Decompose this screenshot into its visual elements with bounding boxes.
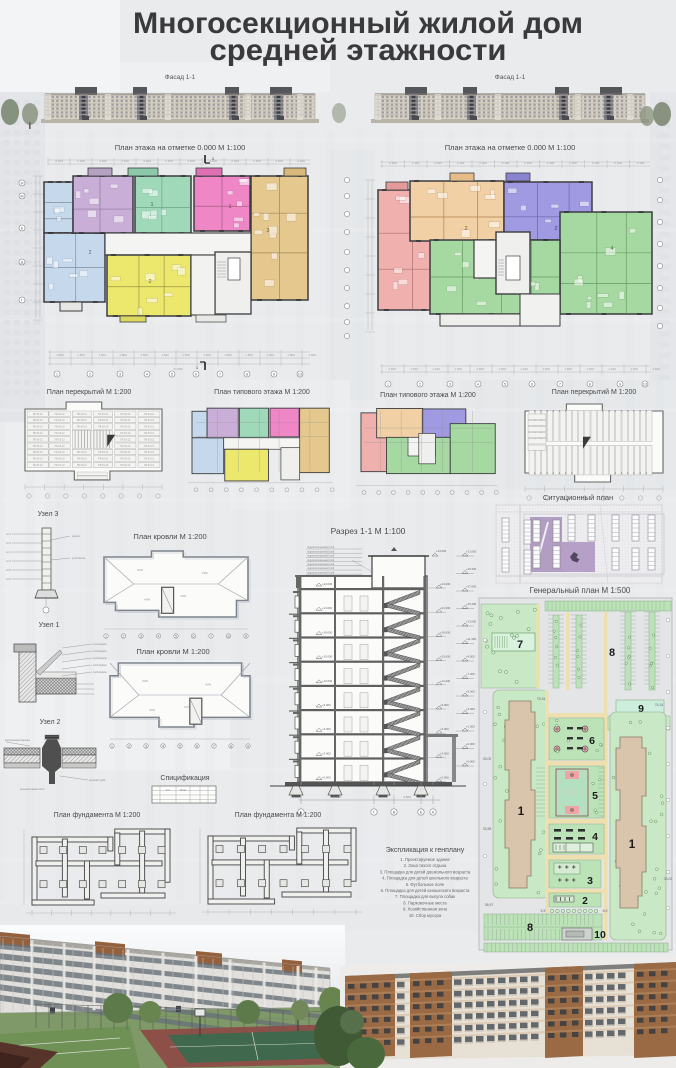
svg-text:ПК 63-12: ПК 63-12	[120, 458, 131, 461]
svg-text:1 400: 1 400	[410, 367, 418, 371]
svg-text:сл.1: сл.1	[6, 532, 12, 536]
svg-text:2 100: 2 100	[231, 159, 239, 163]
svg-text:+24.000: +24.000	[440, 582, 451, 586]
svg-text:i=2%: i=2%	[142, 679, 149, 683]
svg-text:Е: Е	[21, 226, 24, 231]
svg-text:2 100: 2 100	[569, 161, 577, 165]
svg-text:гидроизоляционный слой: гидроизоляционный слой	[307, 546, 335, 549]
svg-text:обозн.: обозн.	[179, 789, 186, 792]
svg-text:гидроизоляционный слой: гидроизоляционный слой	[307, 555, 335, 558]
svg-text:ПК 63-12: ПК 63-12	[77, 426, 88, 429]
svg-text:1 400: 1 400	[586, 367, 594, 371]
svg-text:1: 1	[150, 202, 153, 208]
svg-text:i=2%: i=2%	[202, 571, 209, 575]
svg-text:10. Сбор мусора: 10. Сбор мусора	[409, 913, 442, 918]
svg-text:Экспликация к генплану: Экспликация к генплану	[386, 847, 465, 854]
svg-text:ПК 63-12: ПК 63-12	[33, 438, 44, 441]
svg-text:ПК 63-12: ПК 63-12	[33, 445, 44, 448]
svg-text:ПК 63-12: ПК 63-12	[77, 451, 88, 454]
svg-text:10: 10	[298, 372, 303, 377]
svg-text:ПК 63-12: ПК 63-12	[55, 438, 66, 441]
svg-text:1 500: 1 500	[182, 353, 190, 357]
svg-text:+0.000: +0.000	[322, 776, 331, 780]
svg-text:+12.000: +12.000	[322, 679, 333, 683]
svg-text:8: 8	[527, 922, 533, 934]
svg-text:76,34: 76,34	[537, 697, 546, 701]
svg-text:1 400: 1 400	[630, 367, 638, 371]
svg-text:сл.5: сл.5	[6, 568, 12, 572]
svg-text:+6.000: +6.000	[322, 727, 331, 731]
svg-text:1 400: 1 400	[476, 367, 484, 371]
svg-text:поз.: поз.	[166, 789, 171, 792]
svg-text:1 400: 1 400	[454, 367, 462, 371]
svg-text:гидроизоляционный слой: гидроизоляционный слой	[307, 567, 335, 570]
svg-text:1: 1	[629, 839, 636, 851]
svg-text:План этажа на отметке 0.000 М: План этажа на отметке 0.000 М 1:100	[445, 143, 576, 152]
svg-text:+15.000: +15.000	[440, 655, 451, 659]
svg-text:2 100: 2 100	[121, 159, 129, 163]
svg-text:4: 4	[592, 831, 598, 843]
svg-text:1 500: 1 500	[56, 353, 64, 357]
svg-text:7. Площадка для выгула собак: 7. Площадка для выгула собак	[395, 894, 455, 899]
svg-text:ПК 63-12: ПК 63-12	[120, 419, 131, 422]
svg-text:5,5: 5,5	[541, 909, 546, 913]
svg-text:ПК 63-12: ПК 63-12	[98, 419, 109, 422]
svg-text:ПК 63-12: ПК 63-12	[144, 413, 155, 416]
svg-text:2: 2	[554, 226, 557, 232]
svg-text:сл.3: сл.3	[6, 550, 12, 554]
svg-text:ПК 63-12: ПК 63-12	[144, 451, 155, 454]
svg-text:2 100: 2 100	[547, 161, 555, 165]
svg-text:План кровли М 1:200: План кровли М 1:200	[136, 647, 209, 656]
svg-text:ПК 63-12: ПК 63-12	[33, 464, 44, 467]
svg-text:План фундамента М 1:200: План фундамента М 1:200	[54, 812, 141, 819]
svg-text:33,02: 33,02	[664, 877, 673, 881]
svg-text:ПК 63-12: ПК 63-12	[55, 432, 66, 435]
svg-text:гидроизоляционный слой: гидроизоляционный слой	[307, 563, 335, 566]
svg-text:+23.600: +23.600	[436, 549, 447, 553]
svg-text:2 100: 2 100	[275, 159, 283, 163]
svg-text:ПК 63-12: ПК 63-12	[120, 451, 131, 454]
svg-text:2: 2	[464, 226, 467, 232]
svg-text:ПК 63-12: ПК 63-12	[120, 413, 131, 416]
svg-text:1. Проектируемое здание: 1. Проектируемое здание	[400, 857, 450, 862]
svg-text:1 500: 1 500	[245, 353, 253, 357]
svg-text:ПК 63-12: ПК 63-12	[55, 445, 66, 448]
svg-text:ПК 63-12: ПК 63-12	[33, 426, 44, 429]
svg-text:слой кровли: слой кровли	[93, 671, 107, 674]
svg-text:2: 2	[582, 896, 588, 907]
svg-text:гидроизоляционный слой: гидроизоляционный слой	[307, 559, 335, 562]
svg-text:2 100: 2 100	[592, 161, 600, 165]
svg-text:+5.000: +5.000	[466, 690, 475, 694]
svg-text:слой кровли: слой кровли	[93, 657, 107, 660]
svg-text:2 100: 2 100	[253, 159, 261, 163]
svg-text:+0.000: +0.000	[466, 760, 475, 764]
svg-text:+7.300: +7.300	[466, 672, 475, 676]
svg-text:6: 6	[589, 735, 595, 747]
svg-text:2 100: 2 100	[143, 159, 151, 163]
svg-text:5,5: 5,5	[603, 909, 608, 913]
svg-text:ПК 63-12: ПК 63-12	[98, 458, 109, 461]
svg-text:ПК 63-12: ПК 63-12	[120, 464, 131, 467]
svg-text:1 500: 1 500	[266, 353, 274, 357]
svg-text:Разрез 1-1 М 1:100: Разрез 1-1 М 1:100	[331, 526, 406, 536]
svg-text:Д: Д	[21, 260, 24, 265]
svg-text:ПК 63-12: ПК 63-12	[98, 426, 109, 429]
svg-text:ПК 63-12: ПК 63-12	[33, 458, 44, 461]
svg-text:3. Площадка для детей дошкольн: 3. Площадка для детей дошкольного возрас…	[380, 869, 471, 874]
svg-text:3 600: 3 600	[403, 795, 411, 799]
svg-text:2 100: 2 100	[187, 159, 195, 163]
svg-text:1 400: 1 400	[564, 367, 572, 371]
svg-text:И: И	[21, 181, 24, 186]
svg-text:ПК 63-12: ПК 63-12	[77, 464, 88, 467]
svg-text:+21.000: +21.000	[322, 606, 333, 610]
svg-text:сл.4: сл.4	[6, 559, 12, 563]
svg-text:Узел 1: Узел 1	[39, 622, 60, 629]
svg-text:2 100: 2 100	[614, 161, 622, 165]
svg-text:1 400: 1 400	[498, 367, 506, 371]
svg-text:i=2%: i=2%	[205, 682, 212, 686]
svg-text:чугунная труба: чугунная труба	[89, 780, 106, 782]
svg-text:1 400: 1 400	[652, 367, 660, 371]
svg-text:2: 2	[148, 279, 151, 285]
svg-text:+0.000: +0.000	[440, 776, 449, 780]
svg-text:ПК 63-12: ПК 63-12	[98, 451, 109, 454]
svg-text:8. Парковочные места: 8. Парковочные места	[403, 900, 447, 905]
svg-text:+12.000: +12.000	[440, 679, 451, 683]
svg-text:33,02: 33,02	[483, 757, 492, 761]
svg-text:+24.000: +24.000	[322, 582, 333, 586]
svg-text:ПК 63-12: ПК 63-12	[55, 458, 66, 461]
svg-text:ПК 63-12: ПК 63-12	[55, 413, 66, 416]
svg-text:1 500: 1 500	[119, 353, 127, 357]
svg-text:1 500: 1 500	[77, 353, 85, 357]
svg-text:гидроизоляционный слой: гидроизоляционный слой	[307, 571, 335, 574]
svg-text:слой кровли: слой кровли	[93, 650, 107, 653]
svg-text:2 100: 2 100	[412, 161, 420, 165]
svg-text:i=2%: i=2%	[180, 594, 187, 598]
svg-text:+21.000: +21.000	[466, 550, 477, 554]
svg-text:ПК 63-12: ПК 63-12	[98, 464, 109, 467]
svg-text:Б: Б	[420, 810, 423, 815]
svg-text:1 500: 1 500	[98, 353, 106, 357]
svg-text:i=2%: i=2%	[149, 708, 156, 712]
svg-text:ПК 63-12: ПК 63-12	[77, 413, 88, 416]
svg-text:ПК 63-12: ПК 63-12	[77, 458, 88, 461]
svg-text:1 400: 1 400	[542, 367, 550, 371]
svg-text:1 500: 1 500	[161, 353, 169, 357]
svg-text:ПК 63-12: ПК 63-12	[144, 445, 155, 448]
svg-text:слой кровли: слой кровли	[93, 643, 107, 646]
svg-text:+15.000: +15.000	[322, 655, 333, 659]
svg-text:i=2%: i=2%	[137, 568, 144, 572]
svg-text:3: 3	[587, 875, 593, 887]
svg-text:слой кровли: слой кровли	[93, 664, 107, 667]
svg-text:ПК 63-12: ПК 63-12	[33, 451, 44, 454]
svg-text:+3.000: +3.000	[440, 751, 449, 755]
svg-text:утеплитель: утеплитель	[72, 557, 86, 560]
svg-text:8: 8	[609, 647, 615, 659]
svg-text:Ж: Ж	[20, 194, 24, 199]
svg-text:i=2%: i=2%	[184, 705, 191, 709]
svg-text:2 100: 2 100	[55, 159, 63, 163]
svg-text:1 400: 1 400	[520, 367, 528, 371]
svg-text:2 100: 2 100	[502, 161, 510, 165]
svg-text:+21.000: +21.000	[440, 606, 451, 610]
svg-text:ПК 63-12: ПК 63-12	[98, 413, 109, 416]
svg-text:ПК 63-12: ПК 63-12	[120, 426, 131, 429]
svg-text:+18.000: +18.000	[440, 630, 451, 634]
svg-text:средней этажности: средней этажности	[210, 34, 507, 67]
svg-text:План фундамента М 1:200: План фундамента М 1:200	[235, 812, 322, 819]
svg-text:+13.000: +13.000	[466, 620, 477, 624]
svg-text:Узел 3: Узел 3	[38, 511, 59, 518]
svg-text:Ситуационный план: Ситуационный план	[543, 493, 613, 502]
svg-text:План кровли М 1:200: План кровли М 1:200	[133, 532, 206, 541]
svg-text:кирпич: кирпич	[72, 535, 81, 538]
svg-text:Фасад 1-1: Фасад 1-1	[165, 74, 196, 81]
svg-text:1 400: 1 400	[388, 367, 396, 371]
svg-text:В: В	[393, 810, 396, 815]
svg-text:ПК 63-12: ПК 63-12	[55, 464, 66, 467]
svg-text:ПК 63-12: ПК 63-12	[144, 438, 155, 441]
svg-text:+6.000: +6.000	[440, 727, 449, 731]
svg-text:2 100: 2 100	[457, 161, 465, 165]
svg-text:1 400: 1 400	[608, 367, 616, 371]
svg-text:+1.000: +1.000	[466, 725, 475, 729]
svg-text:ПК 63-12: ПК 63-12	[120, 432, 131, 435]
svg-text:ПК 63-12: ПК 63-12	[144, 426, 155, 429]
svg-text:1 500: 1 500	[224, 353, 232, 357]
svg-text:Узел 2: Узел 2	[40, 719, 61, 726]
svg-text:4. Площадка для детей школьног: 4. Площадка для детей школьного возраста	[382, 876, 468, 881]
svg-text:1: 1	[228, 204, 231, 210]
svg-text:2 100: 2 100	[99, 159, 107, 163]
svg-text:2 100: 2 100	[77, 159, 85, 163]
svg-text:1 500: 1 500	[308, 353, 316, 357]
svg-text:2: 2	[89, 250, 92, 256]
svg-text:10: 10	[594, 929, 606, 941]
svg-text:2. Зона тихого отдыха: 2. Зона тихого отдыха	[404, 863, 447, 868]
svg-text:31 000: 31 000	[173, 367, 183, 371]
svg-text:ПК 63-12: ПК 63-12	[144, 458, 155, 461]
svg-text:План типового этажа М 1:200: План типового этажа М 1:200	[380, 392, 476, 399]
svg-text:2 100: 2 100	[637, 161, 645, 165]
svg-text:+17.000: +17.000	[466, 585, 477, 589]
svg-text:3: 3	[266, 228, 269, 234]
svg-text:1 500: 1 500	[287, 353, 295, 357]
svg-text:76,34: 76,34	[655, 703, 664, 707]
svg-text:2 100: 2 100	[389, 161, 397, 165]
svg-text:А: А	[432, 810, 435, 815]
svg-text:+9.000: +9.000	[322, 703, 331, 707]
svg-text:сл.6: сл.6	[6, 577, 12, 581]
svg-text:сл.2: сл.2	[6, 541, 12, 545]
svg-text:ПК 63-12: ПК 63-12	[55, 451, 66, 454]
svg-text:2 100: 2 100	[524, 161, 532, 165]
svg-text:1 500: 1 500	[203, 353, 211, 357]
svg-text:Генеральный план М 1:500: Генеральный план М 1:500	[530, 586, 631, 595]
svg-text:Фасад 1-1: Фасад 1-1	[495, 74, 526, 81]
svg-text:33,58: 33,58	[483, 827, 492, 831]
svg-text:36,97: 36,97	[485, 903, 494, 907]
svg-text:9. Хозяйственная зона: 9. Хозяйственная зона	[403, 907, 448, 912]
svg-text:7: 7	[517, 639, 523, 651]
svg-text:2 100: 2 100	[434, 161, 442, 165]
svg-text:План перекрытий М 1:200: План перекрытий М 1:200	[47, 388, 132, 396]
svg-text:ПК 63-12: ПК 63-12	[55, 426, 66, 429]
svg-text:железобетонная плита: железобетонная плита	[20, 789, 45, 791]
svg-text:ПК 63-12: ПК 63-12	[144, 419, 155, 422]
svg-text:Спицификация: Спицификация	[160, 775, 209, 782]
svg-text:+15.300: +15.300	[466, 602, 477, 606]
svg-text:ПК 63-12: ПК 63-12	[55, 419, 66, 422]
svg-text:5: 5	[592, 790, 598, 802]
svg-text:6 000: 6 000	[333, 795, 341, 799]
svg-text:2 100: 2 100	[297, 159, 305, 163]
svg-text:5. Футбольное поле: 5. Футбольное поле	[406, 882, 445, 887]
svg-text:1 500: 1 500	[140, 353, 148, 357]
svg-text:ПК 63-12: ПК 63-12	[120, 445, 131, 448]
svg-text:ПК 63-12: ПК 63-12	[144, 432, 155, 435]
svg-text:ПК 63-12: ПК 63-12	[33, 419, 44, 422]
svg-text:План типового этажа М 1:200: План типового этажа М 1:200	[214, 389, 310, 396]
svg-text:ПК 63-12: ПК 63-12	[144, 464, 155, 467]
svg-text:+0.300: +0.300	[466, 742, 475, 746]
svg-text:ПК 63-12: ПК 63-12	[77, 419, 88, 422]
svg-text:ПК 63-12: ПК 63-12	[120, 438, 131, 441]
svg-text:+18.000: +18.000	[322, 630, 333, 634]
svg-text:План этажа на отметке 0.000 М: План этажа на отметке 0.000 М 1:100	[115, 143, 246, 152]
svg-text:водоприемная воронка: водоприемная воронка	[5, 740, 30, 742]
svg-text:+11.300: +11.300	[466, 637, 476, 641]
svg-text:ПК 63-12: ПК 63-12	[33, 413, 44, 416]
svg-text:1 400: 1 400	[432, 367, 440, 371]
svg-text:+3.300: +3.300	[466, 707, 475, 711]
svg-text:i=2%: i=2%	[144, 598, 151, 602]
svg-text:6. Площадка для детей юношеско: 6. Площадка для детей юношеского возраст…	[381, 888, 470, 893]
svg-text:+9.000: +9.000	[466, 655, 475, 659]
svg-text:4: 4	[610, 246, 613, 252]
svg-text:ПК 63-12: ПК 63-12	[33, 432, 44, 435]
svg-text:гидроизоляционный слой: гидроизоляционный слой	[307, 550, 335, 553]
svg-text:План перекрытий М 1:200: План перекрытий М 1:200	[552, 388, 637, 396]
svg-text:1: 1	[518, 806, 525, 818]
svg-text:+9.000: +9.000	[440, 703, 449, 707]
svg-text:2 100: 2 100	[479, 161, 487, 165]
svg-text:10: 10	[643, 382, 648, 387]
svg-text:2 100: 2 100	[165, 159, 173, 163]
svg-text:+3.000: +3.000	[322, 751, 331, 755]
svg-text:+19.300: +19.300	[466, 567, 477, 571]
